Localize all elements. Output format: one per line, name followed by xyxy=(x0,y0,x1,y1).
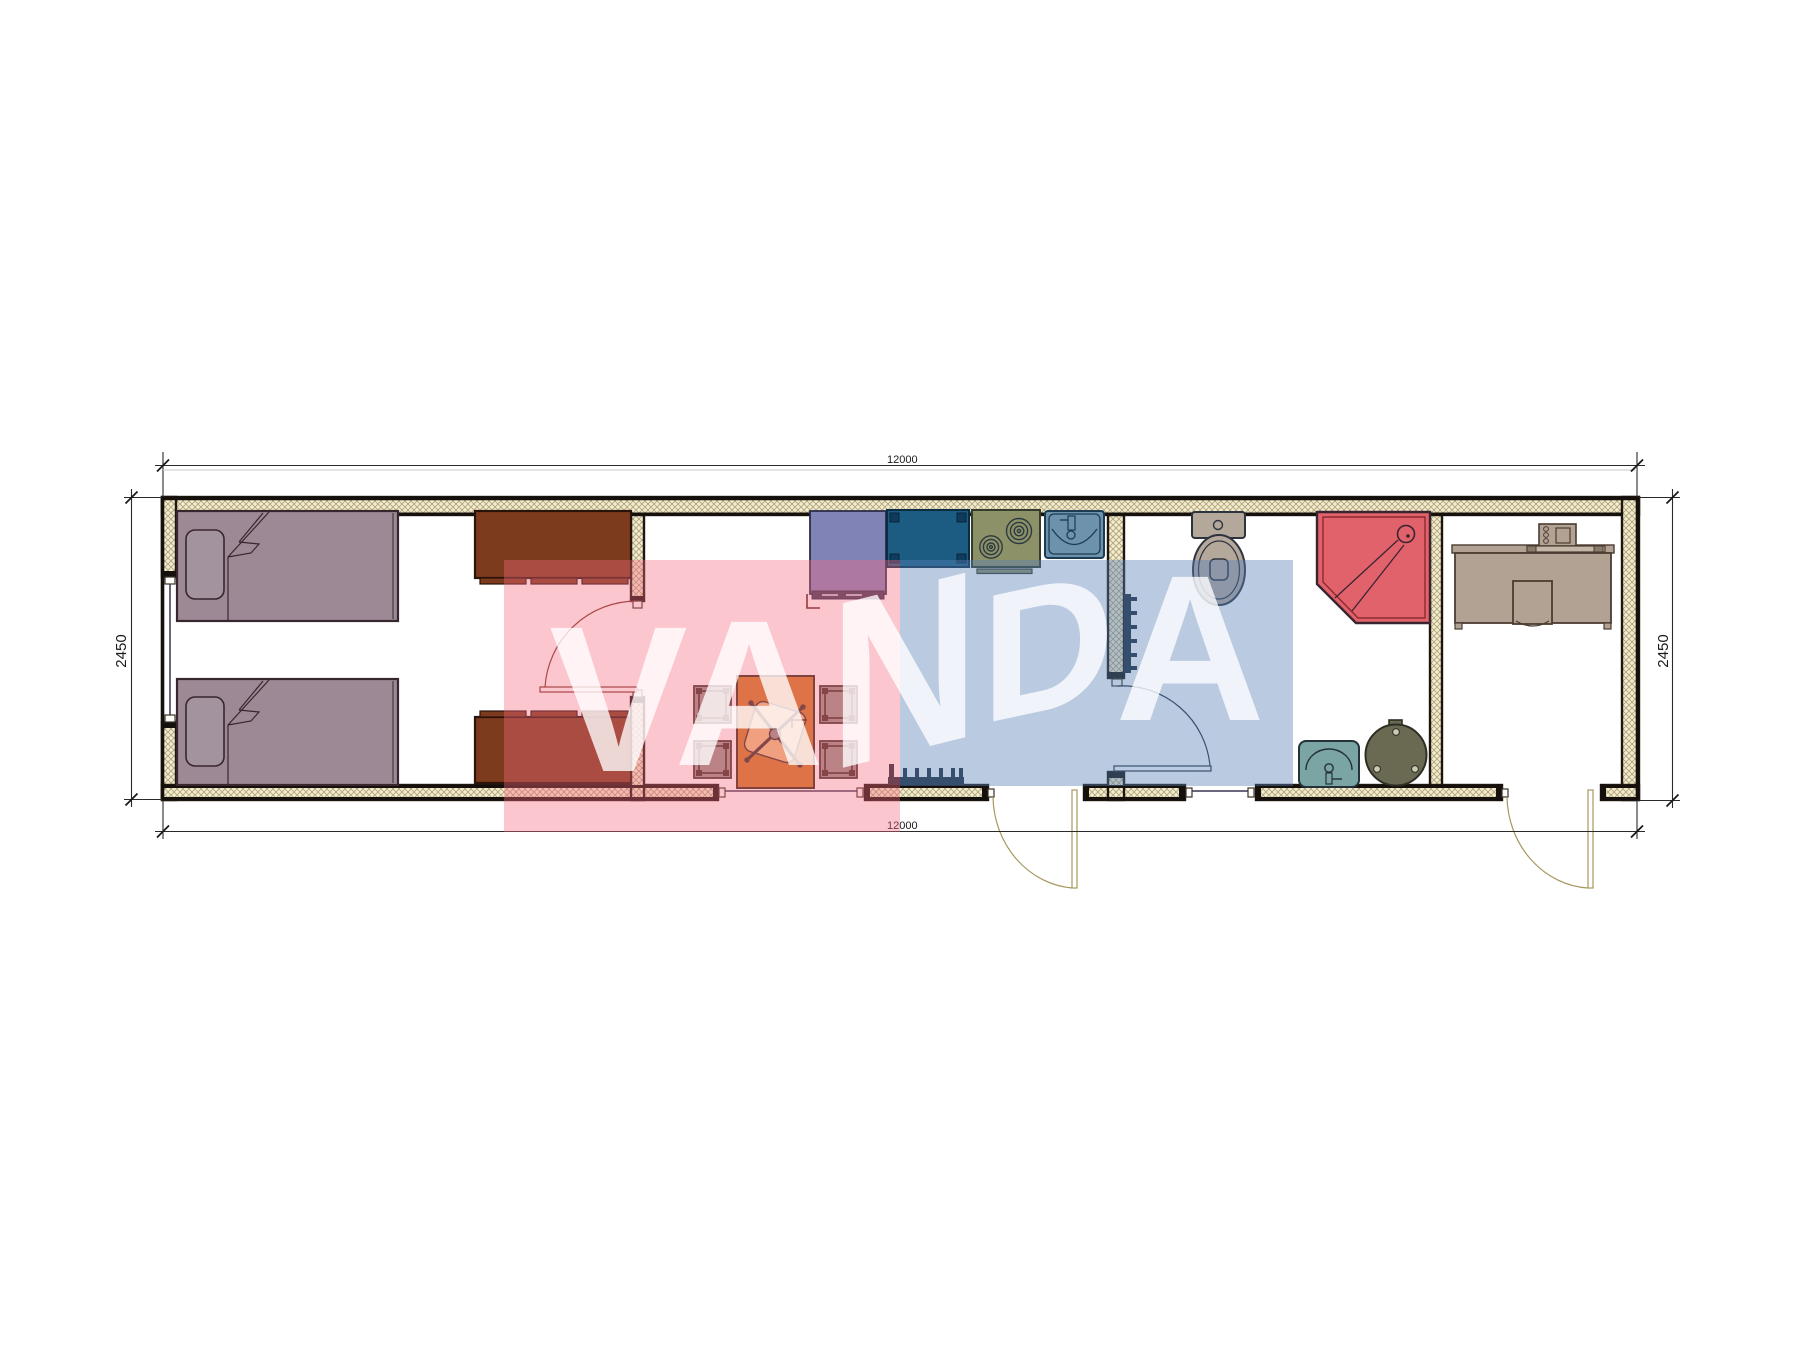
svg-text:2450: 2450 xyxy=(1655,634,1672,667)
svg-text:12000: 12000 xyxy=(887,454,918,466)
svg-text:2450: 2450 xyxy=(113,634,130,667)
